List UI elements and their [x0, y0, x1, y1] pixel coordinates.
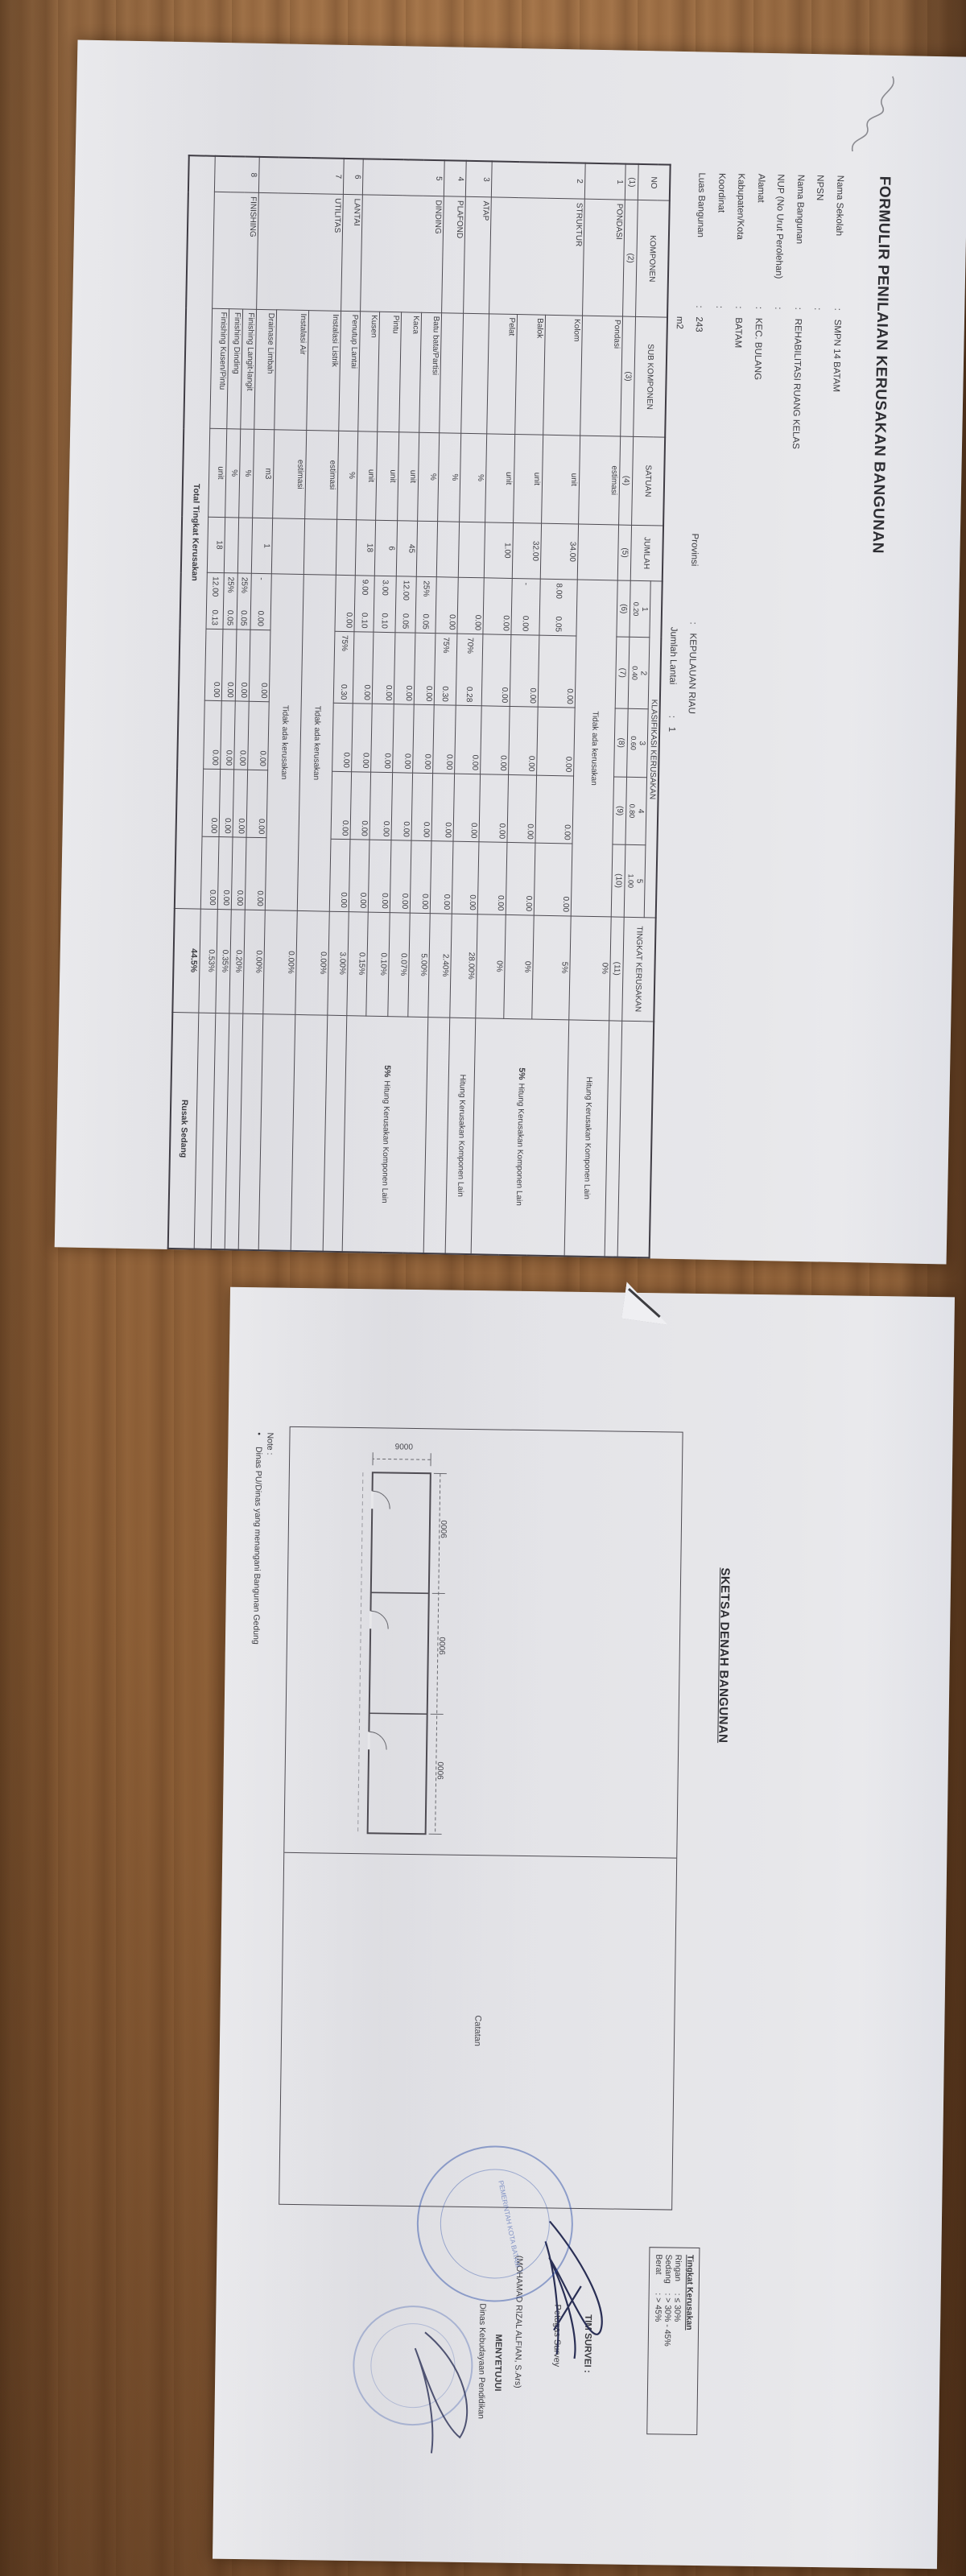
field-colon: : — [813, 308, 823, 319]
cell-sub-komponen: Kaca — [399, 312, 422, 432]
field-label: Luas Bangunan — [695, 172, 707, 305]
cell-satuan: % — [418, 432, 440, 521]
field-value-right: 1 — [667, 727, 676, 733]
cell-no-damage: Tidak ada kerusakan — [297, 575, 336, 911]
cell-klas-value: 0.00 — [430, 841, 453, 914]
cell-klas-value: 0.00 — [433, 705, 456, 774]
cell-satuan: unit — [542, 435, 580, 523]
cell-komponen: DINDING — [361, 195, 444, 312]
cell-klas-value: -0.00 — [511, 579, 540, 635]
footnote-block: Note : •Dinas PU/Dinas yang menangani Ba… — [251, 1432, 275, 1645]
cell-komponen: PONDASI — [583, 199, 625, 316]
cell-tingkat-kerusakan: 3.00% — [328, 911, 349, 1015]
cell-catatan: 5%Hitung Kerusakan Komponen Lain — [471, 1018, 569, 1256]
column-number: (4) — [619, 436, 634, 525]
klas-level-header: 20.40 — [628, 637, 650, 709]
page2-sketch-sheet: SKETSA DENAH BANGUNAN — [213, 1287, 955, 2569]
cell-klas-value: 0.00 — [352, 704, 373, 772]
field-colon: : — [832, 308, 842, 320]
field-colon: : — [667, 716, 676, 727]
damage-table-container: NO KOMPONEN SUB KOMPONEN SATUAN JUMLAH K… — [167, 155, 671, 1258]
cell-sub-komponen: Balok — [515, 314, 546, 435]
cell-sub-komponen: Kusen — [358, 311, 380, 431]
cell-klas-value: 8.000.05 — [539, 579, 577, 636]
sketch-frame: 9000 9000 9000 9000 Catatan — [279, 1426, 683, 2211]
cell-jumlah: 6 — [374, 520, 397, 576]
cell-no: 4 — [444, 160, 466, 196]
cell-klas-value: 75%0.30 — [333, 631, 354, 704]
col-header-sub-komponen: SUB KOMPONEN — [634, 316, 667, 437]
cell-klas-value: 0.00 — [204, 629, 223, 701]
cell-satuan: % — [460, 433, 487, 522]
cell-klas-value: 0.00 — [455, 706, 482, 774]
cell-jumlah — [577, 524, 618, 581]
cell-satuan: estimasi — [579, 436, 621, 524]
cell-sub-komponen: Finishing Langit-langit — [241, 309, 257, 430]
cell-klas-value: 25%0.05 — [223, 573, 237, 630]
cell-klas-value: 0.00 — [481, 706, 510, 774]
col-header-catatan — [617, 1021, 654, 1258]
cell-jumlah: 34.00 — [540, 523, 578, 580]
cell-jumlah — [237, 517, 252, 573]
field-label-right: Jumlah Lantai — [667, 627, 679, 716]
cell-klas-value: 0.00 — [413, 705, 435, 774]
legend-ringan-value: : ≤ 30% — [672, 2293, 682, 2322]
damage-assessment-table: NO KOMPONEN SUB KOMPONEN SATUAN JUMLAH K… — [167, 155, 671, 1258]
cell-satuan: unit — [398, 432, 419, 521]
cell-klas-value: 12.000.13 — [206, 573, 224, 630]
field-colon: : — [753, 307, 763, 318]
field-value: SMPN 14 BATAM — [831, 320, 842, 393]
cell-klas-value: 0.00 — [335, 576, 355, 632]
cell-klas-value: 0.00 — [349, 840, 369, 912]
cell-satuan: % — [337, 431, 358, 519]
cell-tingkat-kerusakan: 0.10% — [366, 912, 390, 1016]
cell-tingkat-kerusakan: 28.00% — [450, 914, 477, 1018]
cell-sub-komponen: Penutup Lantai — [339, 311, 361, 431]
dimension-label-2: 9000 — [439, 1637, 448, 1654]
cell-klas-value: 9.000.10 — [354, 576, 374, 632]
cell-klas-value: 0.00 — [248, 702, 270, 770]
cell-tingkat-kerusakan: 0.00% — [263, 910, 297, 1014]
cell-klas-value: 0.00 — [371, 704, 394, 773]
cell-klas-value: 0.00 — [391, 773, 413, 841]
cell-tingkat-kerusakan: 0% — [504, 914, 534, 1019]
field-label: NUP (No Urut Perolehan) — [774, 174, 786, 307]
cell-jumlah — [336, 519, 356, 576]
cell-no-damage: Tidak ada kerusakan — [265, 574, 303, 910]
cell-no: 6 — [343, 159, 363, 195]
cell-jumlah: 18 — [355, 519, 375, 576]
cell-komponen: STRUKTUR — [489, 197, 585, 315]
cell-no: 1 — [584, 163, 625, 200]
cell-jumlah — [303, 518, 336, 576]
form-field-line: Kabupaten/Kota:BATAM — [733, 173, 746, 348]
cell-klas-value: 0.00 — [368, 840, 391, 912]
cell-klas-value: 12.000.05 — [395, 576, 416, 633]
legend-berat-value: : > 45% — [653, 2293, 663, 2322]
cell-tingkat-kerusakan: 0.00% — [243, 910, 265, 1013]
cell-satuan: % — [438, 433, 461, 522]
cell-komponen: UTILITAS — [257, 193, 344, 311]
cell-klas-value: 0.00 — [246, 770, 268, 838]
cell-klas-value: 0.00 — [219, 769, 234, 837]
cell-tingkat-kerusakan: 0.07% — [388, 912, 410, 1016]
cell-no: 5 — [362, 159, 444, 196]
cell-satuan: % — [225, 429, 241, 518]
cell-tingkat-kerusakan: 0.35% — [216, 909, 231, 1013]
cell-satuan: % — [239, 429, 254, 518]
total-status: Rusak Sedang — [168, 1012, 199, 1249]
form-field-line: Alamat:KEC. BULANG — [753, 174, 766, 381]
field-colon: : — [695, 305, 704, 316]
cell-klas-value: 0.00 — [479, 774, 509, 843]
cell-tingkat-kerusakan: 5.00% — [408, 913, 430, 1017]
cell-catatan: Hitung Kerusakan Komponen Lain — [564, 1019, 609, 1257]
field-label — [677, 172, 679, 305]
klas-level-header: 30.60 — [627, 709, 649, 778]
column-number: (10) — [611, 844, 625, 917]
cell-klas-value: 0.00 — [394, 633, 415, 705]
cell-sub-komponen: Batu bata/Partisi — [419, 312, 442, 433]
cell-sub-komponen: Finishing Dinding — [227, 308, 243, 429]
cell-klas-value: 0.00 — [436, 577, 458, 634]
cell-klas-value: 0.00 — [331, 771, 352, 840]
field-value: KEC. BULANG — [753, 318, 763, 381]
cell-tingkat-kerusakan: 5% — [532, 915, 571, 1020]
cell-klas-value: 0.00 — [329, 840, 350, 912]
cell-jumlah: 1 — [251, 518, 272, 574]
cell-klas-value: 0.00 — [534, 843, 572, 915]
cell-klas-value: 25%0.05 — [415, 577, 436, 634]
cell-klas-value: 0.00 — [234, 701, 250, 770]
legend-ringan-label: Ringan — [673, 2255, 683, 2293]
cell-catatan-empty — [291, 1014, 328, 1252]
page1-title: FORMULIR PENILAIAN KERUSAKAN BANGUNAN — [868, 176, 893, 555]
cell-no: 3 — [465, 161, 492, 197]
approver-label: MENYETUJUI — [493, 2334, 503, 2391]
total-tingkat-value: 44.5% — [173, 908, 200, 1012]
column-number: (9) — [613, 777, 627, 845]
cell-komponen: LANTAI — [341, 195, 363, 312]
cell-klas-value: 0.00 — [231, 837, 246, 910]
catatan-label: Catatan — [473, 2015, 483, 2046]
field-label: Kabupaten/Kota — [734, 173, 746, 306]
cell-tingkat-kerusakan: 0% — [569, 916, 611, 1021]
cell-sub-komponen: Pintu — [378, 312, 402, 432]
field-colon: : — [714, 306, 724, 317]
cell-sub-komponen: Instalasi Listrik — [307, 310, 341, 431]
cell-klas-value: 0.00 — [510, 634, 539, 707]
cell-klas-value: 0.00 — [414, 633, 436, 705]
cell-no: 8 — [214, 156, 259, 193]
cell-catatan: Hitung Kerusakan Komponen Lain — [445, 1018, 476, 1255]
cell-klas-value: 0.00 — [369, 772, 393, 840]
field-label: Nama Sekolah — [832, 175, 844, 308]
cell-klas-value: 0.00 — [372, 632, 395, 704]
cell-klas-value: 0.00 — [410, 840, 431, 913]
footnote-bullet: • — [254, 1432, 264, 1435]
cell-tingkat-kerusakan: 0% — [476, 914, 506, 1018]
cell-catatan-empty — [258, 1013, 295, 1251]
cell-jumlah — [458, 522, 485, 578]
form-fields-block: Nama Sekolah:SMPN 14 BATAMNPSN:Nama Bang… — [826, 175, 844, 1141]
cell-klas-value: 70%0.28 — [456, 634, 483, 706]
damage-level-legend: Tingkat Kerusakan Ringan: ≤ 30% Sedang: … — [646, 2247, 700, 2435]
field-label: Alamat — [753, 174, 766, 307]
cell-klas-value: 0.00 — [200, 836, 219, 909]
cell-klas-value: 0.00 — [390, 840, 411, 913]
form-field-line: NPSN: — [813, 175, 825, 319]
legend-sedang-label: Sedang — [663, 2254, 674, 2293]
field-value: REHABILITASI RUANG KELAS — [791, 319, 803, 449]
cell-komponen: PLAFOND — [442, 196, 466, 313]
cell-klas-value: 0.00 — [537, 708, 576, 776]
cell-no-damage: Tidak ada kerusakan — [571, 580, 617, 916]
cell-klas-value: 0.00 — [452, 841, 479, 914]
col-header-komponen: KOMPONEN — [636, 200, 670, 317]
cell-jumlah — [224, 517, 238, 573]
cell-no: 7 — [258, 157, 344, 195]
cell-klas-value: 0.00 — [483, 578, 512, 634]
form-field-line: Nama Bangunan:REHABILITASI RUANG KELAS — [791, 175, 806, 449]
cell-klas-value: 0.00 — [411, 773, 433, 841]
field-colon: : — [734, 306, 744, 317]
cell-klas-value: 0.00 — [353, 632, 374, 704]
column-number: (2) — [623, 200, 638, 316]
field-colon: : — [774, 307, 783, 318]
cell-klas-value: -0.00 — [250, 574, 271, 630]
page1-form-sheet: FORMULIR PENILAIAN KERUSAKAN BANGUNAN Na… — [55, 40, 966, 1265]
cell-klas-value: 0.00 — [431, 773, 455, 841]
cell-klas-value: 0.00 — [457, 578, 484, 634]
cell-klas-value: 0.00 — [332, 704, 353, 772]
cell-klas-value: 0.00 — [481, 634, 511, 707]
page2-title: SKETSA DENAH BANGUNAN — [716, 1567, 732, 1743]
footnote-text: Dinas PU/Dinas yang menangani Bangunan G… — [251, 1447, 263, 1645]
dimension-label-1: 9000 — [440, 1520, 449, 1538]
cell-komponen: ATAP — [464, 197, 492, 314]
cell-satuan: m3 — [253, 429, 275, 518]
cell-satuan: estimasi — [305, 431, 339, 519]
col-header-tingkat: TINGKAT KERUSAKAN — [622, 917, 656, 1022]
cell-klas-value: 3.000.10 — [374, 576, 396, 633]
cell-klas-value: 0.00 — [509, 707, 539, 775]
cell-no: 2 — [491, 161, 585, 199]
cell-catatan: 5%Hitung Kerusakan Komponen Lain — [342, 1015, 428, 1253]
cell-klas-value: 0.00 — [233, 770, 248, 838]
cell-jumlah: 1.00 — [484, 522, 513, 578]
cell-tingkat-kerusakan: 0.15% — [347, 911, 368, 1015]
column-number: (5) — [617, 525, 631, 581]
cell-sub-komponen — [461, 313, 489, 434]
page1-wrapper: FORMULIR PENILAIAN KERUSAKAN BANGUNAN Na… — [55, 40, 966, 1265]
cell-klas-value: 0.00 — [506, 843, 535, 915]
dimension-label-height: 9000 — [395, 1443, 413, 1451]
cell-klas-value: 0.00 — [538, 635, 576, 708]
cell-klas-value: 0.00 — [221, 630, 237, 702]
field-colon: : — [793, 308, 803, 319]
cell-satuan: unit — [208, 428, 227, 517]
cell-tingkat-kerusakan: 2.40% — [428, 913, 452, 1017]
cell-tingkat-kerusakan: 0.20% — [229, 910, 245, 1013]
cell-jumlah: 45 — [396, 520, 417, 576]
approver-signature — [399, 2324, 489, 2462]
cell-sub-komponen: Kolom — [543, 315, 583, 436]
pen-squiggle-mark — [827, 68, 901, 159]
cell-satuan: unit — [485, 434, 515, 522]
field-value: BATAM — [733, 317, 744, 348]
page2-wrapper: SKETSA DENAH BANGUNAN — [213, 1287, 955, 2569]
column-number: (1) — [625, 164, 638, 200]
cell-klas-value: 0.00 — [202, 769, 221, 837]
column-number: (6) — [617, 580, 630, 637]
cell-klas-value: 25%0.05 — [237, 573, 251, 630]
form-field-line: Luas Bangunan:243Provinsi:KEPULAUAN RIAU — [687, 172, 707, 714]
cell-komponen: FINISHING — [213, 192, 259, 309]
cell-jumlah — [416, 521, 437, 577]
cell-klas-value: 0.00 — [245, 837, 266, 910]
cell-klas-value: 0.00 — [453, 774, 481, 842]
cell-klas-value: 0.00 — [221, 701, 236, 770]
form-field-line: NUP (No Urut Perolehan): — [774, 174, 786, 318]
legend-title: Tingkat Kerusakan — [683, 2255, 695, 2428]
cell-satuan: unit — [357, 431, 378, 520]
cell-satuan: estimasi — [273, 430, 307, 518]
col-header-jumlah: JUMLAH — [630, 525, 663, 582]
cell-klas-value: 0.00 — [204, 701, 222, 770]
cell-klas-value: 0.00 — [393, 704, 415, 773]
cell-tingkat-kerusakan: 0.00% — [295, 910, 329, 1015]
klas-level-header: 51.00 — [624, 845, 646, 918]
dimension-label-3: 9000 — [437, 1761, 446, 1779]
cell-sub-komponen: Drainase Limbah — [254, 309, 277, 430]
klas-level-header: 40.80 — [625, 777, 647, 845]
field-label-right: Provinsi — [688, 533, 700, 621]
cell-klas-value: 0.00 — [535, 775, 574, 844]
column-number: (7) — [615, 637, 630, 709]
col-header-no: NO — [638, 164, 670, 201]
cell-klas-value: 0.00 — [217, 837, 233, 910]
cell-sub-komponen: Pondasi — [580, 316, 623, 437]
col-header-satuan: SATUAN — [632, 436, 666, 525]
cell-klas-value: 75%0.30 — [434, 634, 457, 706]
cell-satuan: unit — [514, 435, 543, 523]
column-number: (11) — [609, 917, 624, 1021]
form-field-line: m2Jumlah Lantai:1 — [667, 172, 687, 732]
cell-catatan-empty — [423, 1017, 450, 1253]
cell-jumlah — [436, 521, 459, 577]
cell-tingkat-kerusakan: 0.53% — [199, 909, 217, 1013]
field-label: NPSN — [813, 175, 825, 308]
field-value: m2 — [675, 316, 684, 329]
cell-klas-value: 0.00 — [235, 630, 250, 702]
field-label: Koordinat — [714, 173, 726, 306]
klas-level-header: 10.20 — [630, 581, 650, 638]
cell-klas-value: 0.00 — [249, 630, 270, 702]
legend-sedang-value: : > 30% - 45% — [663, 2293, 673, 2346]
cell-klas-value: 0.00 — [477, 842, 507, 914]
cell-satuan: unit — [376, 431, 399, 520]
cell-sub-komponen: Pelat — [487, 313, 518, 434]
cell-jumlah: 32.00 — [512, 522, 541, 579]
field-value: 243 — [694, 316, 704, 332]
cell-sub-komponen: Finishing Kusen/Pintu — [210, 308, 229, 429]
field-label: Nama Bangunan — [793, 175, 805, 308]
cell-jumlah — [271, 518, 304, 575]
photo-of-documents: { "page1": { "title": "FORMULIR PENILAIA… — [0, 0, 966, 2576]
cell-sub-komponen — [440, 312, 464, 433]
cell-klas-value: 0.00 — [350, 772, 371, 840]
cell-jumlah: 18 — [207, 517, 225, 573]
cell-klas-value: 0.00 — [507, 774, 537, 843]
field-colon: : — [688, 621, 698, 633]
form-field-line: Nama Sekolah:SMPN 14 BATAM — [831, 175, 844, 393]
field-value-right: KEPULAUAN RIAU — [687, 633, 698, 714]
floor-plan-drawing — [330, 1444, 481, 1848]
footnote-label: Note : — [265, 1432, 275, 1455]
form-field-line: Koordinat: — [714, 173, 726, 317]
column-number: (3) — [621, 316, 636, 437]
cell-sub-komponen: Instalasi Air — [275, 309, 309, 430]
column-number: (8) — [614, 708, 629, 777]
legend-berat-label: Berat — [654, 2254, 664, 2293]
